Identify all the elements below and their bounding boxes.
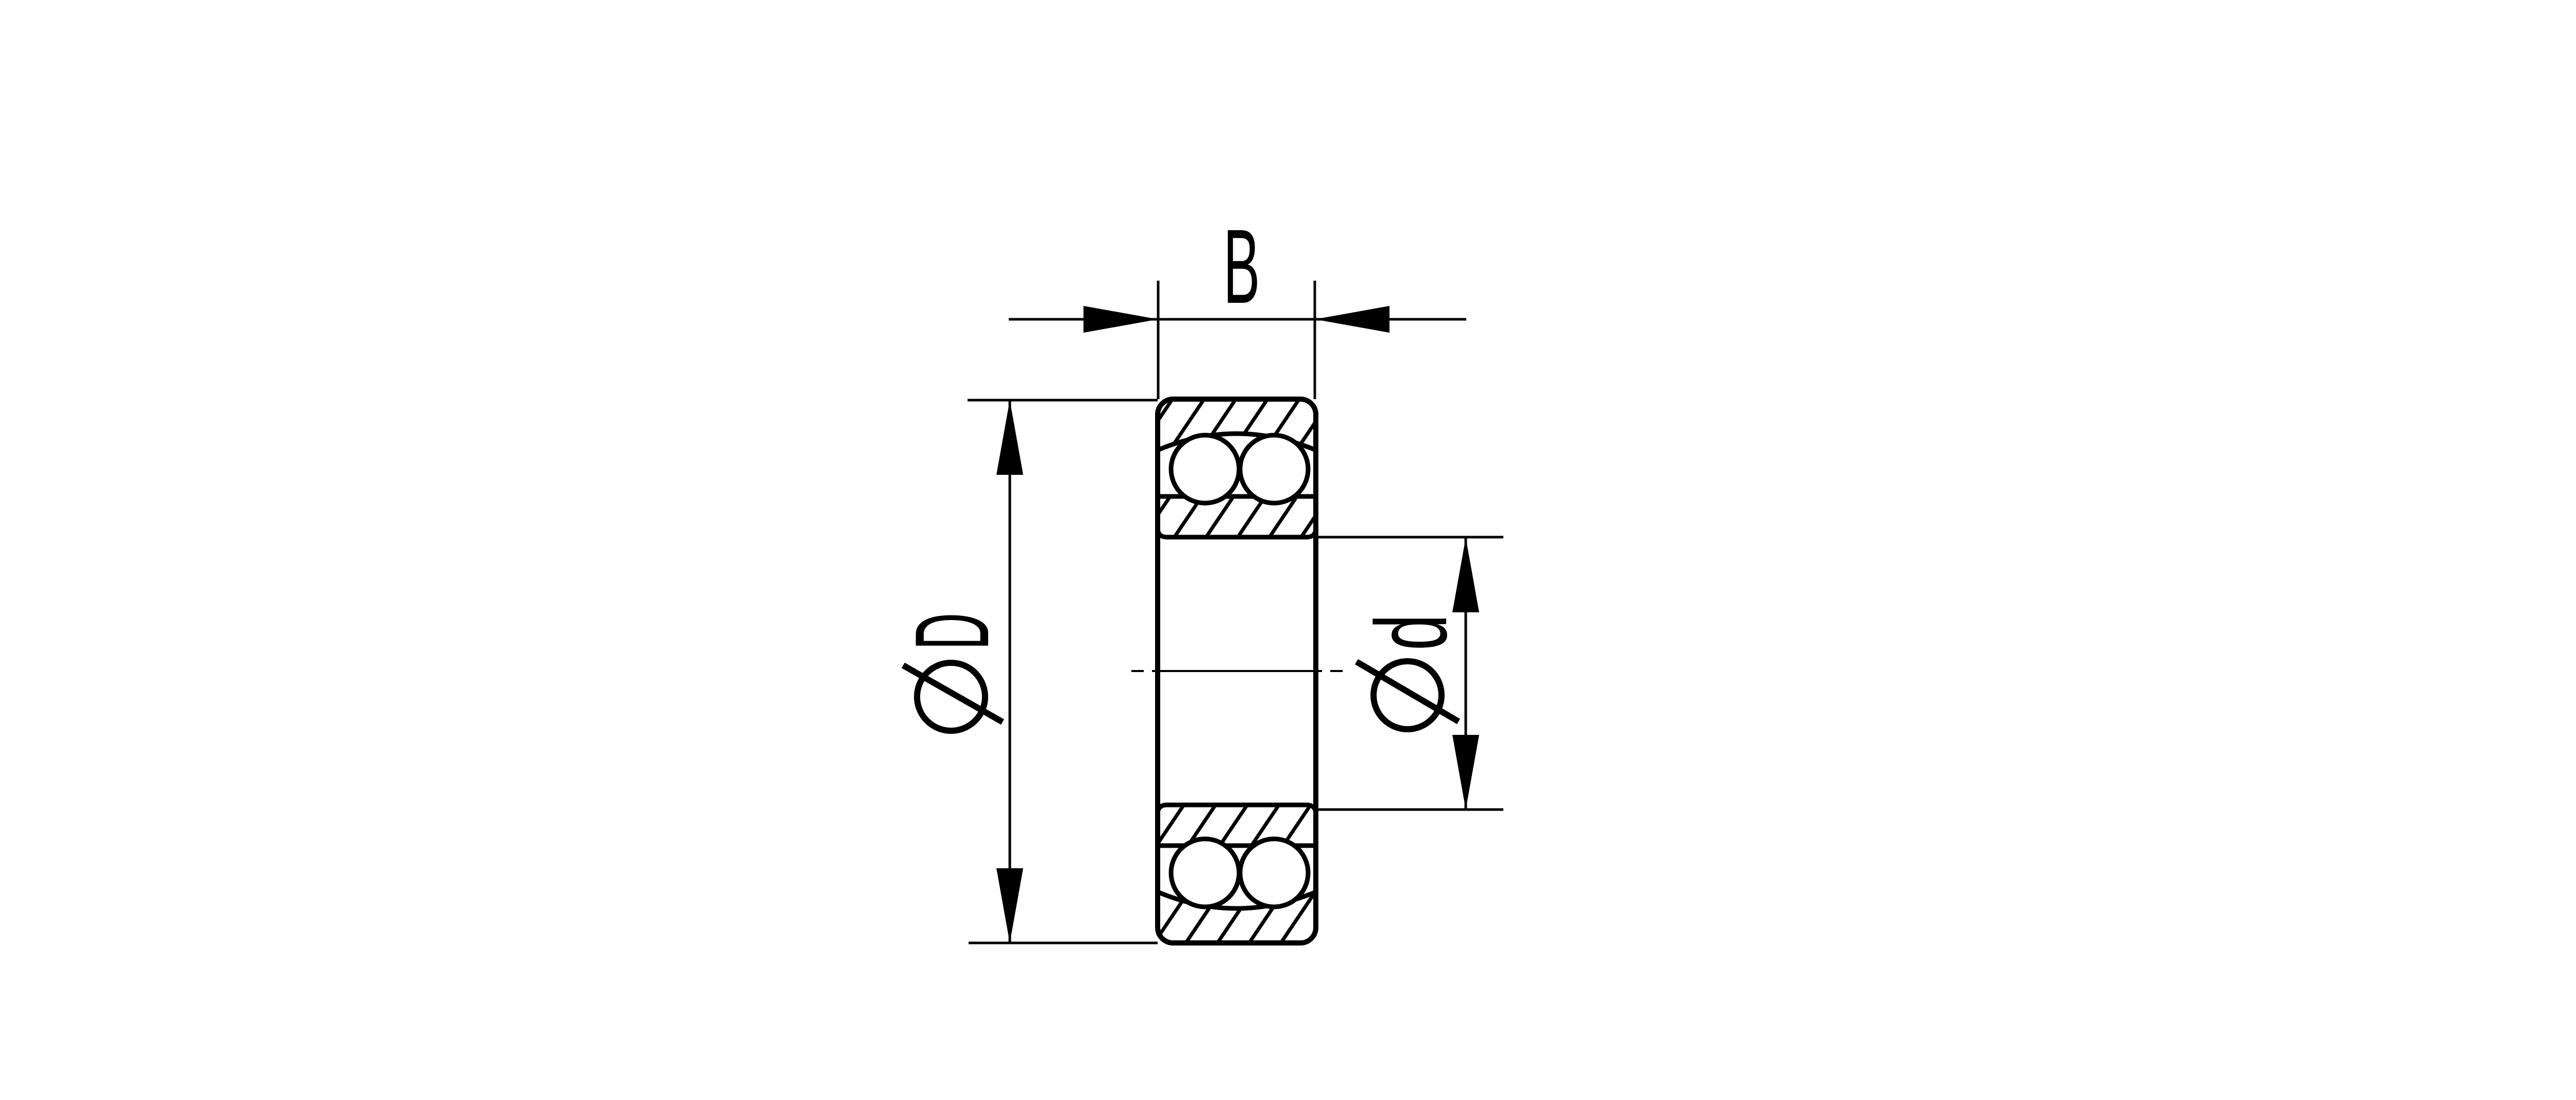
- arrowhead: [996, 868, 1023, 943]
- dimension-bore-diameter: d: [1317, 537, 1503, 810]
- technical-drawing-canvas: B D d: [0, 0, 2576, 1100]
- bearing-drawing: B D d: [0, 0, 2576, 1100]
- dimension-outer-diameter: D: [894, 400, 1158, 943]
- arrowhead: [1315, 306, 1389, 333]
- dimension-B: B: [1009, 207, 1466, 399]
- diameter-symbol-icon: [903, 663, 1003, 731]
- diameter-symbol-icon: [1357, 661, 1459, 729]
- ball: [1240, 435, 1308, 503]
- inner-ring-top-section: [1158, 496, 1316, 537]
- label-B: B: [1223, 207, 1260, 325]
- inner-ring-bottom-section: [1158, 805, 1316, 846]
- label-outer-diameter: D: [894, 613, 1011, 650]
- label-bore-diameter: d: [1355, 614, 1468, 650]
- arrowhead: [1083, 306, 1158, 333]
- ball: [1171, 435, 1239, 503]
- arrowhead: [1452, 538, 1479, 612]
- arrowhead: [996, 400, 1023, 475]
- arrowhead: [1452, 735, 1479, 810]
- ball: [1171, 839, 1239, 907]
- ball: [1240, 839, 1308, 907]
